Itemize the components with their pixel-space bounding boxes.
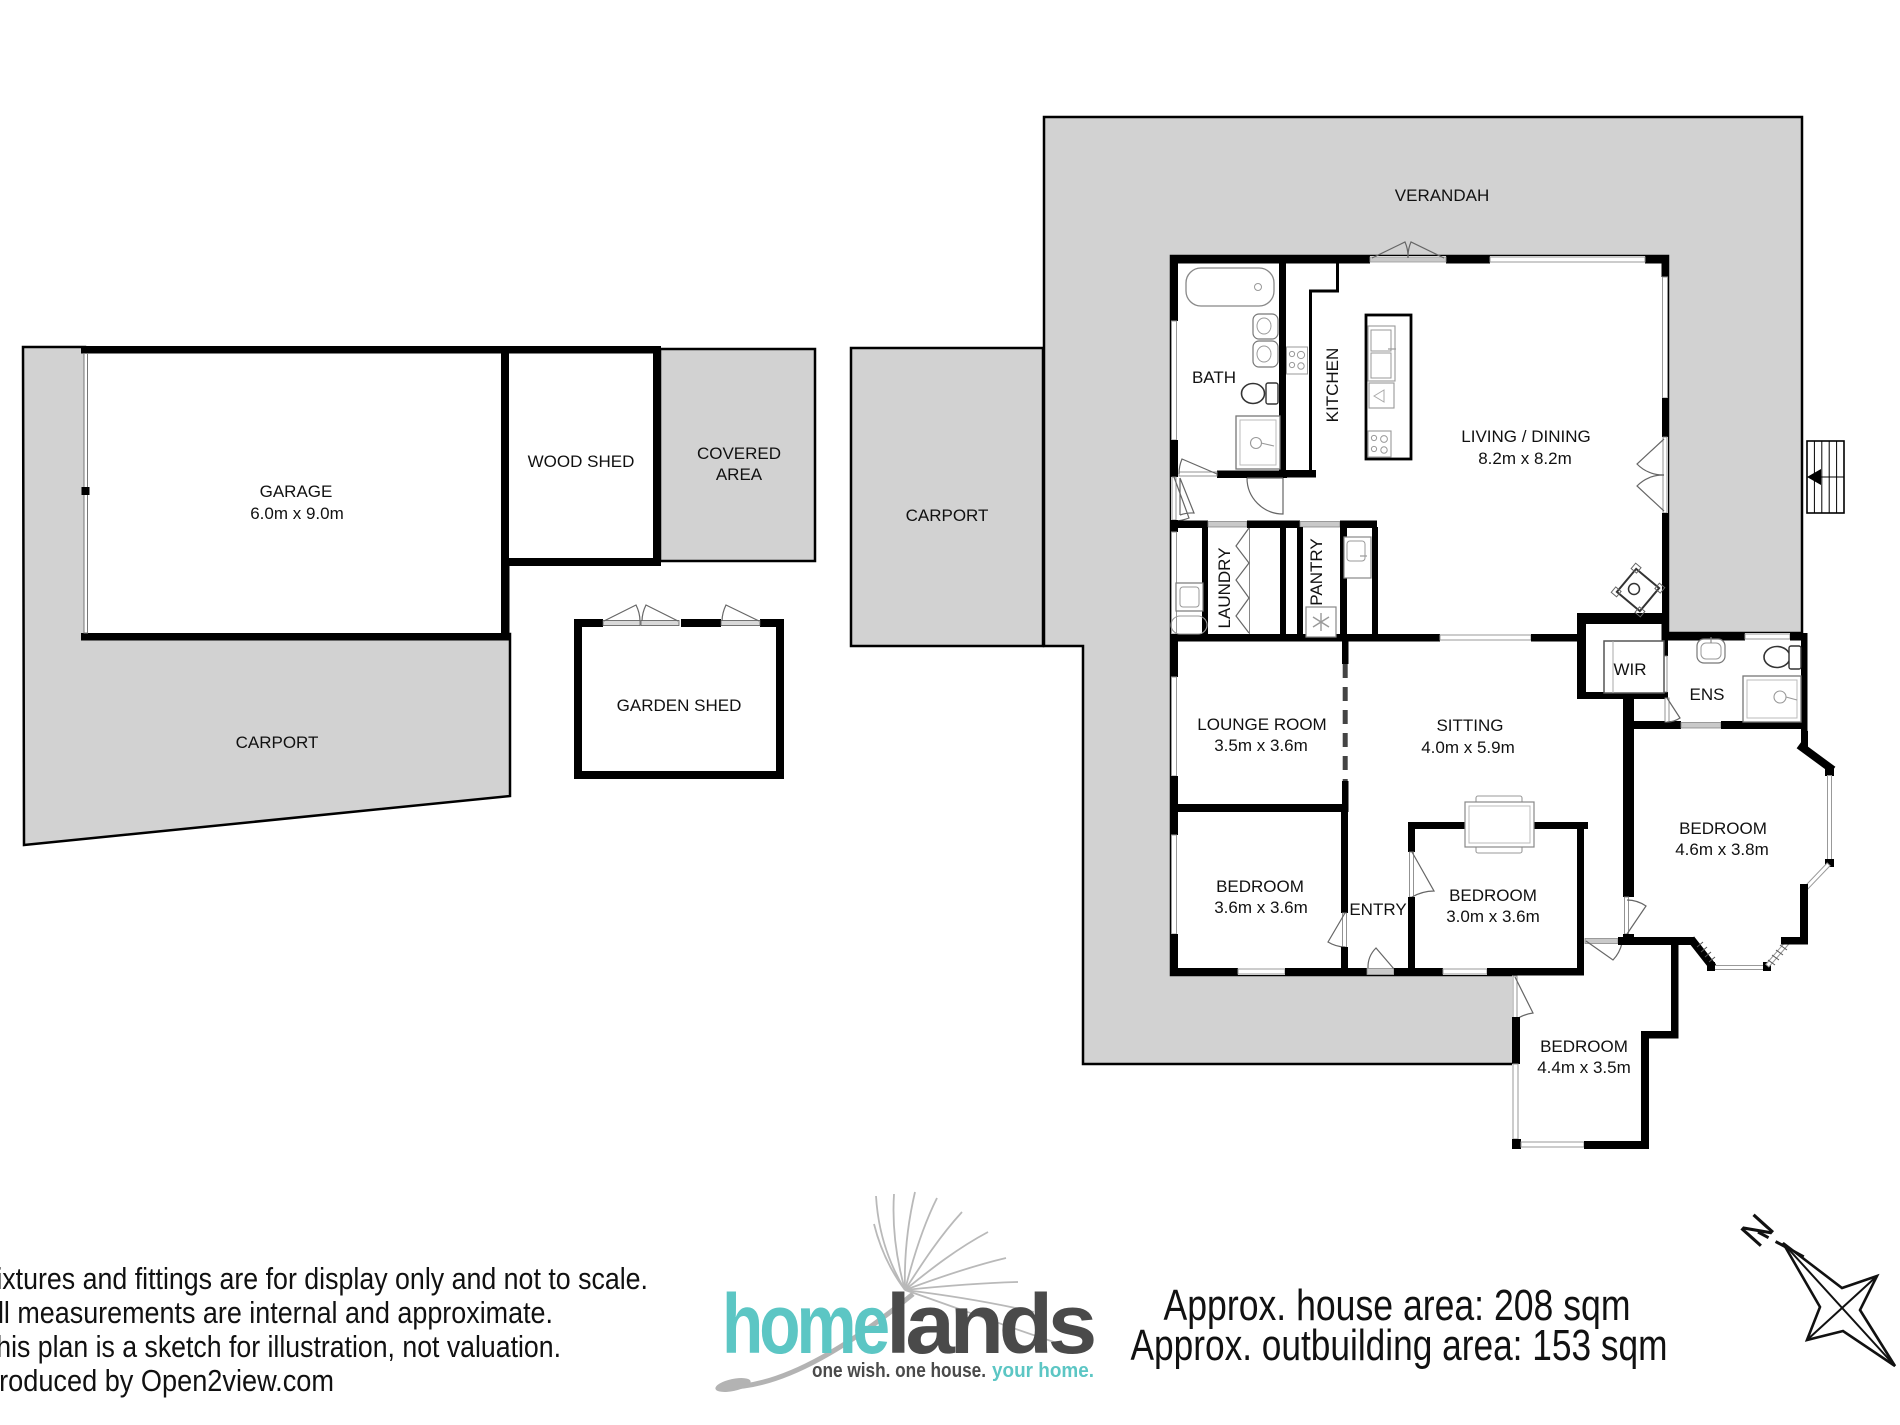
svg-text:BATH: BATH (1192, 368, 1236, 387)
svg-text:KITCHEN: KITCHEN (1323, 348, 1342, 423)
svg-text:8.2m x 8.2m: 8.2m x 8.2m (1478, 449, 1572, 468)
svg-text:3.6m x 3.6m: 3.6m x 3.6m (1214, 898, 1308, 917)
svg-text:ENS: ENS (1690, 685, 1725, 704)
svg-text:This plan is a sketch for illu: This plan is a sketch for illustration, … (0, 1329, 561, 1364)
svg-text:Approx. outbuilding area: 153: Approx. outbuilding area: 153 sqm (1131, 1321, 1668, 1370)
svg-text:PANTRY: PANTRY (1307, 538, 1326, 605)
svg-text:COVERED: COVERED (697, 444, 781, 463)
svg-text:your home.: your home. (992, 1360, 1094, 1382)
svg-text:GARDEN SHED: GARDEN SHED (617, 696, 742, 715)
svg-text:home: home (722, 1277, 888, 1371)
svg-text:one wish. one house.: one wish. one house. (812, 1360, 986, 1382)
svg-text:WOOD SHED: WOOD SHED (528, 452, 635, 471)
svg-text:LAUNDRY: LAUNDRY (1215, 548, 1234, 629)
svg-text:BEDROOM: BEDROOM (1216, 877, 1304, 896)
svg-text:LOUNGE ROOM: LOUNGE ROOM (1197, 715, 1326, 734)
svg-text:AREA: AREA (716, 465, 763, 484)
svg-text:Produced by Open2view.com: Produced by Open2view.com (0, 1363, 334, 1398)
svg-text:3.0m x 3.6m: 3.0m x 3.6m (1446, 907, 1540, 926)
svg-text:6.0m x 9.0m: 6.0m x 9.0m (250, 504, 344, 523)
svg-text:BEDROOM: BEDROOM (1679, 819, 1767, 838)
svg-text:BEDROOM: BEDROOM (1540, 1037, 1628, 1056)
svg-text:LIVING / DINING: LIVING / DINING (1461, 427, 1590, 446)
svg-text:VERANDAH: VERANDAH (1395, 186, 1489, 205)
svg-text:CARPORT: CARPORT (906, 506, 989, 525)
svg-text:ENTRY: ENTRY (1349, 900, 1406, 919)
svg-text:Fixtures and fittings are for: Fixtures and fittings are for display on… (0, 1261, 648, 1296)
svg-text:WIR: WIR (1613, 660, 1646, 679)
svg-text:3.5m x 3.6m: 3.5m x 3.6m (1214, 736, 1308, 755)
svg-text:GARAGE: GARAGE (260, 482, 333, 501)
svg-text:BEDROOM: BEDROOM (1449, 886, 1537, 905)
svg-text:CARPORT: CARPORT (236, 733, 319, 752)
svg-text:lands: lands (886, 1277, 1094, 1371)
svg-text:4.0m x 5.9m: 4.0m x 5.9m (1421, 738, 1515, 757)
svg-text:4.4m x 3.5m: 4.4m x 3.5m (1537, 1058, 1631, 1077)
svg-text:4.6m x 3.8m: 4.6m x 3.8m (1675, 840, 1769, 859)
svg-text:All measurements are internal: All measurements are internal and approx… (0, 1295, 553, 1330)
svg-text:SITTING: SITTING (1436, 716, 1503, 735)
